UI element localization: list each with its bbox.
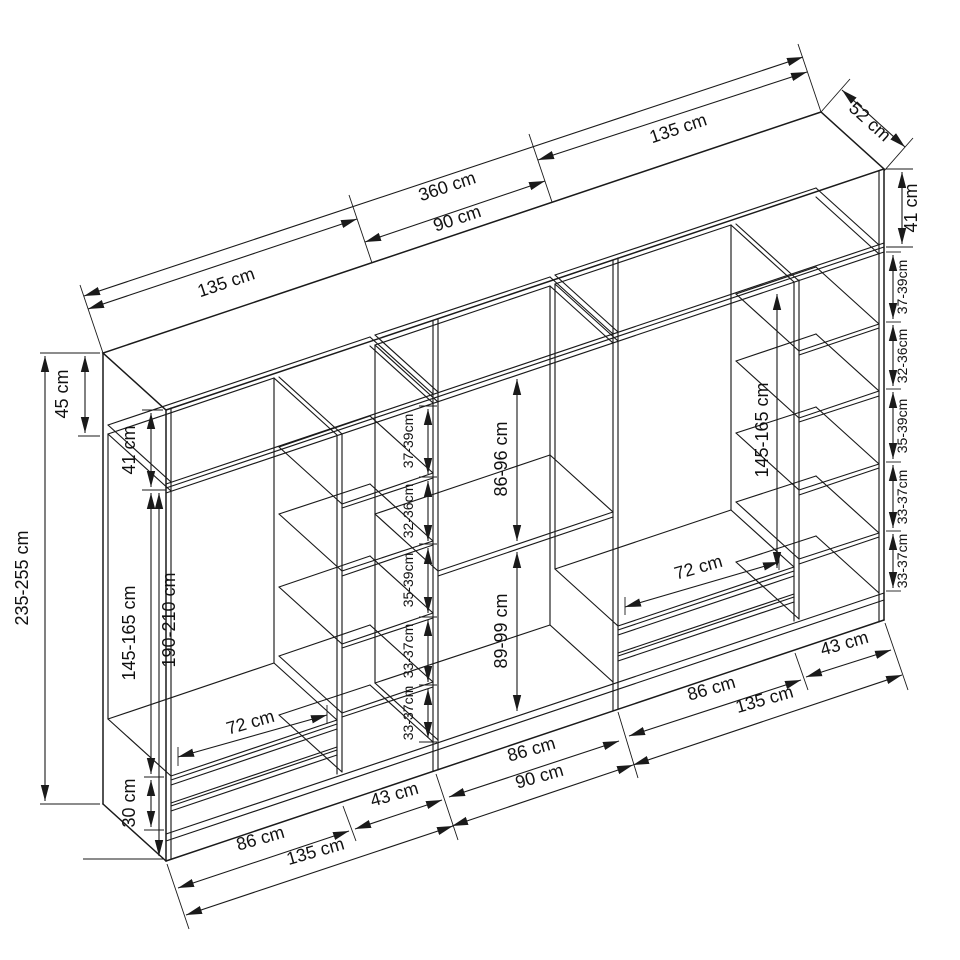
dim-label-col-a-shelf-2: 32-36cm <box>400 484 416 538</box>
dim-col-a-shelf-5: 33-37cm <box>400 686 428 740</box>
dim-right-shelf-2: 32-36cm <box>893 325 910 386</box>
dim-mid-upper: 86-96 cm <box>491 379 517 541</box>
dim-top-width-total: 360 cm <box>84 57 803 296</box>
dim-left-base: 30 cm <box>119 778 151 827</box>
dim-label-right-shelf-1: 37-39cm <box>894 260 910 314</box>
dim-label-top-width-a: 135 cm <box>195 263 257 301</box>
dim-label-col-a-shelf-4: 33-37cm <box>400 624 416 678</box>
dim-left-upper: 45 cm <box>52 356 85 433</box>
dim-label-c-total: 135 cm <box>733 681 795 716</box>
dim-label-left-hang: 145-165 cm <box>119 585 139 680</box>
dim-c-col: 43 cm <box>806 627 891 677</box>
dim-label-right-shelf-5: 33-37cm <box>894 534 910 588</box>
dim-label-a-total: 135 cm <box>284 833 346 868</box>
dim-b-total: 90 cm <box>452 760 633 826</box>
dim-label-col-a-shelf-5: 33-37cm <box>400 686 416 740</box>
dim-label-left-total: 235-255 cm <box>12 530 32 625</box>
dim-c-rod: 72 cm <box>625 551 779 607</box>
dim-label-right-upper: 41 cm <box>901 183 921 232</box>
dim-label-c-rod: 72 cm <box>672 551 725 584</box>
dim-right-upper: 41 cm <box>901 172 921 244</box>
dim-label-left-base: 30 cm <box>119 778 139 827</box>
dim-c-total: 135 cm <box>633 675 902 765</box>
dim-label-right-shelf-2: 32-36cm <box>894 329 910 383</box>
dim-label-a-rod: 72 cm <box>224 706 277 739</box>
dimensions-right: 41 cm 37-39cm 32-36cm 35-39cm 33-37cm 33… <box>886 169 921 591</box>
dim-label-a-col: 43 cm <box>368 778 421 811</box>
dimensions-left: 45 cm 235-255 cm 41 cm 145-165 cm 30 cm … <box>12 353 179 859</box>
dim-right-shelf-3: 35-39cm <box>893 392 910 459</box>
dim-label-mid-upper: 86-96 cm <box>491 421 511 496</box>
dim-a-col: 43 cm <box>355 778 442 829</box>
dim-left-upper-inner: 41 cm <box>119 413 151 487</box>
dim-label-top-width-total: 360 cm <box>416 167 478 205</box>
dim-hang-c: 145-165 cm <box>752 294 777 568</box>
dim-label-mid-lower: 89-99 cm <box>491 593 511 668</box>
dim-label-hang-c: 145-165 cm <box>752 382 772 477</box>
dim-top-width-a: 135 cm <box>88 219 357 309</box>
dim-top-width-c: 135 cm <box>538 72 807 160</box>
dim-label-top-depth: 52 cm <box>845 98 895 146</box>
dim-top-depth: 52 cm <box>842 90 905 147</box>
diagram-canvas: 135 cm 360 cm 90 cm 135 cm 52 cm 4 <box>0 0 960 960</box>
dim-left-hang: 145-165 cm <box>119 493 151 774</box>
dimensions-center: 86-96 cm 89-99 cm 145-165 cm <box>491 294 777 711</box>
dim-label-c-col: 43 cm <box>818 627 871 660</box>
dim-label-a-inner: 86 cm <box>234 822 287 855</box>
dim-label-col-a-shelf-1: 37-39cm <box>400 414 416 468</box>
dim-a-total: 135 cm <box>186 826 453 915</box>
section-a-interior <box>108 378 342 811</box>
dim-right-shelf-4: 33-37cm <box>893 465 910 528</box>
dim-label-c-inner: 86 cm <box>685 672 738 705</box>
wardrobe-dimension-diagram: 135 cm 360 cm 90 cm 135 cm 52 cm 4 <box>0 0 960 960</box>
dim-left-total: 235-255 cm <box>12 356 45 801</box>
dimensions-top: 135 cm 360 cm 90 cm 135 cm 52 cm <box>80 44 913 353</box>
dim-label-left-body: 190-210 cm <box>159 572 179 667</box>
dim-label-left-upper: 45 cm <box>52 369 72 418</box>
dim-label-b-total: 90 cm <box>513 760 566 793</box>
dim-right-shelf-5: 33-37cm <box>893 534 910 588</box>
dim-mid-lower: 89-99 cm <box>491 552 517 711</box>
dim-col-a-shelf-4: 33-37cm <box>400 620 428 682</box>
dim-label-col-a-shelf-3: 35-39cm <box>400 553 416 607</box>
dim-label-right-shelf-4: 33-37cm <box>894 470 910 524</box>
dim-label-top-width-b: 90 cm <box>431 201 484 236</box>
dim-label-top-width-c: 135 cm <box>647 109 709 147</box>
dim-label-right-shelf-3: 35-39cm <box>894 399 910 453</box>
dim-right-shelf-1: 37-39cm <box>893 255 910 319</box>
dim-label-left-upper-inner: 41 cm <box>119 425 139 474</box>
